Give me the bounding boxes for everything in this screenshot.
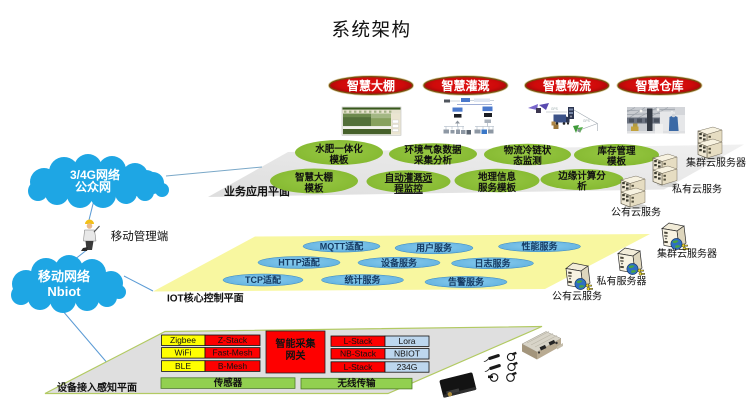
svg-text:日志服务: 日志服务 [474,258,511,269]
svg-text:私有云服务: 私有云服务 [672,183,722,196]
svg-text:Z-Stack: Z-Stack [218,335,248,345]
svg-text:L-Stack: L-Stack [344,336,374,346]
svg-text:公有云服务: 公有云服务 [611,206,661,219]
svg-text:模板: 模板 [304,183,324,195]
svg-text:设备接入感知平面: 设备接入感知平面 [57,381,137,394]
svg-text:模板: 模板 [607,156,627,168]
svg-text:智慧物流: 智慧物流 [542,78,591,93]
svg-text:智能采集: 智能采集 [276,337,317,350]
svg-text:水肥一体化: 水肥一体化 [315,143,363,155]
svg-text:GPS: GPS [583,119,590,123]
svg-text:移动管理端: 移动管理端 [111,229,169,243]
svg-text:态监测: 态监测 [513,155,542,167]
svg-text:移动网络: 移动网络 [38,269,90,284]
svg-text:Lora: Lora [398,336,415,346]
svg-text:GPS: GPS [551,107,558,111]
svg-text:BLE: BLE [175,361,191,371]
svg-text:集群云服务器: 集群云服务器 [686,156,746,169]
svg-text:析: 析 [577,181,587,193]
svg-text:公有云服务: 公有云服务 [552,290,602,303]
svg-text:B-Mesh: B-Mesh [218,361,248,371]
svg-text:传感器: 传感器 [213,377,243,389]
svg-text:性能服务: 性能服务 [521,241,558,252]
svg-text:MQTT适配: MQTT适配 [320,241,364,252]
svg-text:智慧大棚: 智慧大棚 [295,172,333,184]
svg-text:WiFi: WiFi [175,348,192,358]
svg-text:NBIOT: NBIOT [394,349,420,359]
svg-text:智慧仓库: 智慧仓库 [634,78,683,93]
svg-text:IOT核心控制平面: IOT核心控制平面 [167,292,244,305]
svg-text:程监控: 程监控 [394,183,423,195]
svg-text:告警服务: 告警服务 [448,276,485,287]
svg-text:库存管理: 库存管理 [596,145,636,157]
svg-text:集群云服务器: 集群云服务器 [657,247,717,260]
svg-text:网关: 网关 [286,349,306,362]
svg-text:234G: 234G [397,362,418,372]
svg-text:智慧大棚: 智慧大棚 [346,78,395,93]
svg-text:Zigbee: Zigbee [170,335,196,345]
svg-text:公众网: 公众网 [75,179,111,194]
svg-text:用户服务: 用户服务 [415,242,453,253]
svg-text:设备服务: 设备服务 [381,257,418,268]
svg-text:私有服务器: 私有服务器 [597,275,647,288]
svg-text:智慧灌溉: 智慧灌溉 [440,78,489,93]
svg-text:L-Stack: L-Stack [344,362,374,372]
svg-text:环境气象数据: 环境气象数据 [404,144,462,156]
svg-text:HTTP适配: HTTP适配 [278,257,320,268]
svg-text:边缘计算分: 边缘计算分 [557,170,606,182]
svg-text:地理信息: 地理信息 [478,171,517,183]
svg-text:无线传输: 无线传输 [336,378,376,390]
svg-text:NB-Stack: NB-Stack [340,349,377,359]
svg-text:采集分析: 采集分析 [413,155,453,167]
svg-text:Nbiot: Nbiot [47,284,81,299]
svg-text:模板: 模板 [329,154,349,166]
svg-text:服务模板: 服务模板 [478,182,517,194]
svg-text:Fast-Mesh: Fast-Mesh [212,348,252,358]
svg-text:系统架构: 系统架构 [331,20,411,41]
svg-text:统计服务: 统计服务 [344,274,381,285]
svg-text:物流冷链状: 物流冷链状 [504,145,552,157]
svg-text:TCP适配: TCP适配 [245,274,281,285]
svg-text:自动灌溉远: 自动灌溉远 [385,172,433,184]
